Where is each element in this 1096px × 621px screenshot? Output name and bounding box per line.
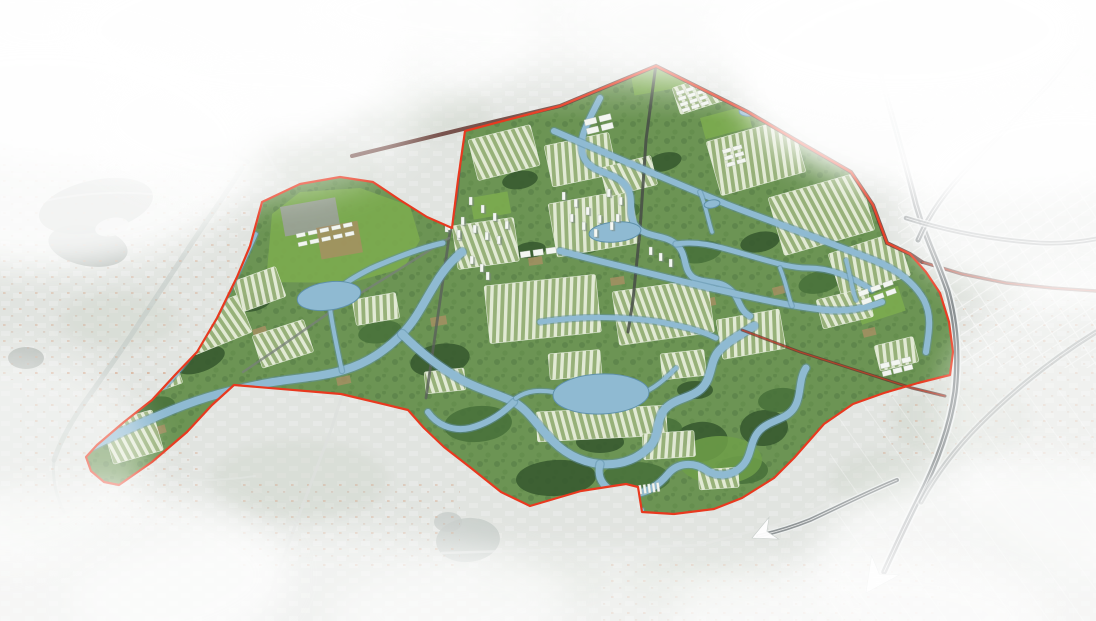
tower-building bbox=[481, 205, 486, 214]
building-slab bbox=[520, 251, 531, 258]
tower-building bbox=[497, 236, 502, 245]
tower-building bbox=[659, 253, 664, 262]
tower-building bbox=[486, 272, 491, 281]
tower-building bbox=[570, 214, 575, 223]
tower-building bbox=[485, 232, 490, 241]
tower-building bbox=[594, 229, 599, 238]
tower-building bbox=[473, 225, 478, 234]
tower-building bbox=[616, 214, 621, 223]
tower-building bbox=[649, 247, 654, 256]
tower-building bbox=[607, 189, 612, 198]
tower-building bbox=[582, 222, 587, 231]
tower-building bbox=[619, 197, 624, 206]
tower-building bbox=[586, 207, 591, 216]
masterplan-canvas: Aerial perspective rendering of an urban… bbox=[0, 0, 1096, 621]
striped-development-block bbox=[484, 274, 601, 343]
tower-building bbox=[598, 215, 603, 224]
tower-building bbox=[562, 192, 567, 201]
masterplan-rendering: Aerial perspective rendering of an urban… bbox=[0, 0, 1096, 621]
tower-building bbox=[469, 197, 474, 206]
tower-building bbox=[470, 256, 475, 265]
tower-building bbox=[480, 264, 485, 273]
tower-building bbox=[461, 217, 466, 226]
tower-building bbox=[493, 213, 498, 222]
building-slab bbox=[533, 249, 544, 256]
tower-building bbox=[457, 230, 462, 239]
fog-patch bbox=[80, 40, 420, 200]
tower-building bbox=[669, 259, 674, 268]
tower-building bbox=[505, 221, 510, 230]
tower-building bbox=[610, 222, 615, 231]
building-slab bbox=[546, 247, 557, 254]
tower-building bbox=[574, 199, 579, 208]
